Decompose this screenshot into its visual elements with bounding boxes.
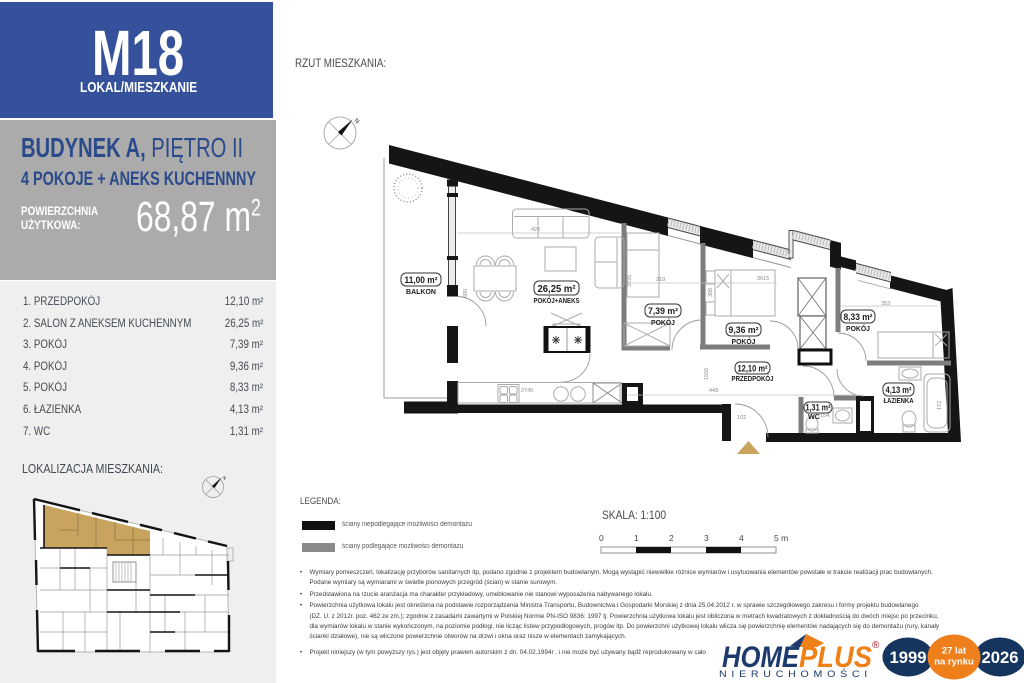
svg-text:4,13 m²: 4,13 m² — [886, 385, 912, 395]
svg-text:11,00 m²: 11,00 m² — [405, 275, 438, 285]
svg-text:9,36 m²: 9,36 m² — [729, 325, 759, 335]
svg-text:WC: WC — [808, 412, 821, 421]
svg-text:na rynku: na rynku — [934, 657, 974, 668]
svg-text:26,25 m²: 26,25 m² — [538, 284, 577, 295]
svg-text:172: 172 — [937, 401, 943, 410]
svg-text:8,33 m²: 8,33 m² — [844, 312, 873, 322]
svg-text:102: 102 — [737, 415, 746, 421]
svg-text:POKÓJ: POKÓJ — [846, 324, 870, 333]
svg-text:2: 2 — [669, 533, 674, 543]
svg-text:3615: 3615 — [757, 276, 769, 282]
svg-text:12,10 m²: 12,10 m² — [738, 364, 768, 374]
svg-text:425: 425 — [531, 227, 540, 233]
svg-text:1999: 1999 — [890, 648, 927, 667]
svg-text:5 m: 5 m — [774, 533, 788, 543]
svg-text:154: 154 — [820, 413, 829, 419]
svg-text:3725: 3725 — [627, 275, 633, 287]
svg-text:3: 3 — [704, 533, 709, 543]
svg-text:449: 449 — [709, 388, 718, 394]
svg-text:2026: 2026 — [982, 648, 1019, 667]
svg-text:1,31 m²: 1,31 m² — [806, 403, 831, 413]
svg-text:4: 4 — [739, 533, 744, 543]
svg-text:N: N — [221, 475, 227, 481]
svg-text:219: 219 — [656, 277, 665, 283]
svg-text:7,39 m²: 7,39 m² — [648, 306, 678, 316]
svg-text:PRZEDPOKÓJ: PRZEDPOKÓJ — [732, 374, 774, 383]
svg-text:BALKON: BALKON — [406, 287, 436, 296]
svg-text:27 lat: 27 lat — [942, 646, 967, 657]
svg-text:353: 353 — [881, 301, 890, 307]
svg-text:®: ® — [872, 640, 880, 651]
svg-text:POKÓJ: POKÓJ — [732, 337, 756, 346]
svg-text:2745: 2745 — [521, 388, 533, 394]
svg-text:306: 306 — [708, 288, 714, 297]
svg-text:POKÓJ: POKÓJ — [651, 318, 675, 327]
svg-text:0: 0 — [599, 533, 604, 543]
svg-text:1555: 1555 — [704, 368, 710, 380]
svg-text:ŁAZIENKA: ŁAZIENKA — [884, 396, 914, 405]
svg-text:NIERUCHOMOŚCI: NIERUCHOMOŚCI — [719, 668, 872, 679]
svg-text:POKÓJ+ANEKS: POKÓJ+ANEKS — [534, 296, 580, 305]
svg-text:1: 1 — [634, 533, 639, 543]
svg-text:605: 605 — [463, 289, 469, 298]
